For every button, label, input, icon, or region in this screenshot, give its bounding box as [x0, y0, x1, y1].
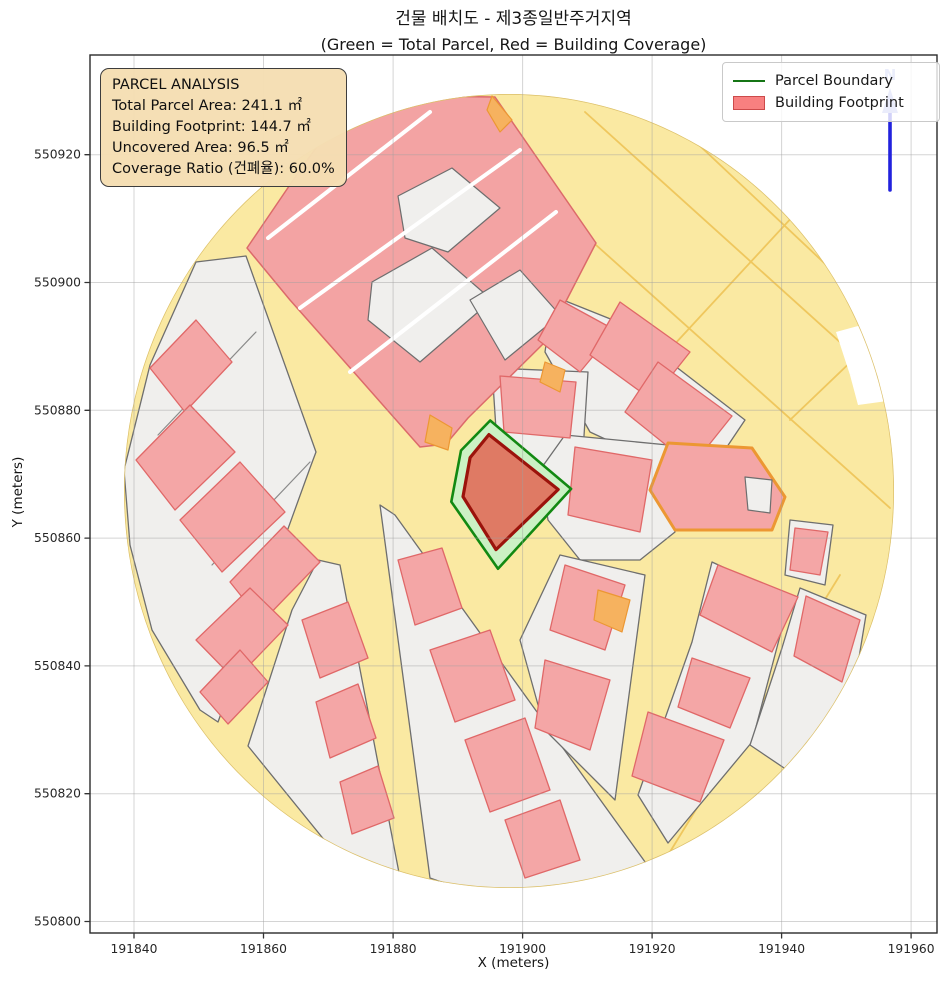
legend-item-building-footprint: Building Footprint [733, 92, 929, 114]
y-tick-label: 550840 [34, 659, 81, 673]
x-tick-label: 191940 [758, 942, 805, 956]
legend: Parcel Boundary Building Footprint [722, 62, 940, 122]
x-tick-label: 191840 [111, 942, 158, 956]
x-tick-label: 191860 [240, 942, 287, 956]
building-footprint-patch-swatch [733, 96, 765, 110]
parcel-analysis-coverage-ratio: Coverage Ratio (건폐율): 60.0% [112, 159, 335, 180]
context-building [500, 376, 576, 438]
parcel-analysis-box: PARCEL ANALYSIS Total Parcel Area: 241.1… [100, 68, 347, 187]
y-axis-label: Y (meters) [10, 457, 26, 528]
y-tick-label: 550900 [34, 276, 81, 290]
parcel-boundary-line-swatch [733, 80, 765, 82]
parcel-analysis-uncovered-area: Uncovered Area: 96.5 ㎡ [112, 138, 335, 159]
y-tick-label: 550860 [34, 531, 81, 545]
orange-parcel-subdivision [745, 477, 772, 513]
title-line1: 건물 배치도 - 제3종일반주거지역 [90, 8, 937, 31]
y-tick-label: 550880 [34, 403, 81, 417]
x-tick-label: 191920 [629, 942, 676, 956]
y-tick-label: 550820 [34, 787, 81, 801]
title-line2: (Green = Total Parcel, Red = Building Co… [90, 33, 937, 56]
x-tick-label: 191900 [499, 942, 546, 956]
y-tick-label: 550920 [34, 148, 81, 162]
legend-label-building-footprint: Building Footprint [775, 95, 904, 111]
x-tick-label: 191960 [888, 942, 935, 956]
x-tick-label: 191880 [370, 942, 417, 956]
parcel-analysis-building-footprint: Building Footprint: 144.7 ㎡ [112, 117, 335, 138]
legend-label-parcel-boundary: Parcel Boundary [775, 73, 893, 89]
x-axis-label: X (meters) [90, 955, 937, 971]
legend-item-parcel-boundary: Parcel Boundary [733, 70, 929, 92]
figure: 1918401918601918801919001919201919401919… [0, 0, 944, 990]
y-tick-label: 550800 [34, 915, 81, 929]
parcel-analysis-total-area: Total Parcel Area: 241.1 ㎡ [112, 96, 335, 117]
parcel-analysis-title: PARCEL ANALYSIS [112, 75, 335, 96]
chart-title: 건물 배치도 - 제3종일반주거지역 (Green = Total Parcel… [90, 8, 937, 56]
